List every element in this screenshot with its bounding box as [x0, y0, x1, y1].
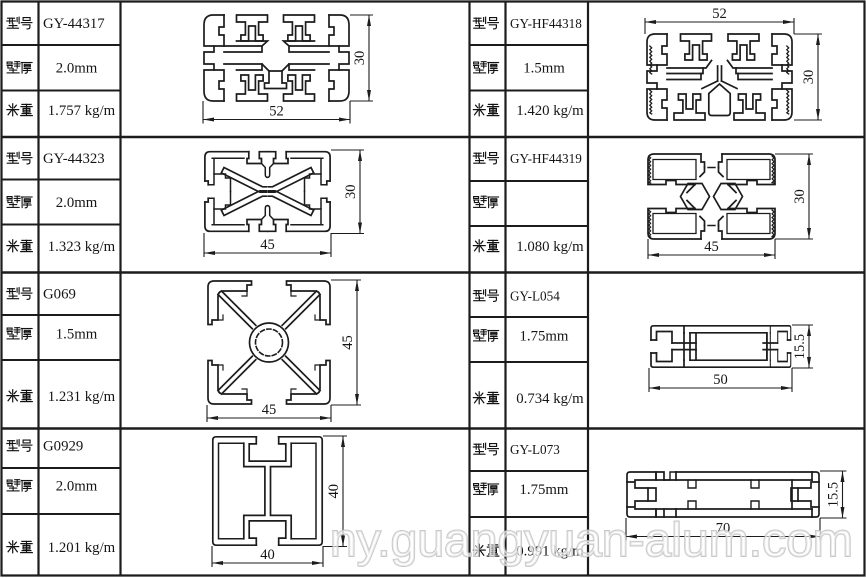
svg-text:45: 45 [704, 239, 719, 255]
svg-text:30: 30 [792, 189, 808, 204]
svg-text:1.231 kg/m: 1.231 kg/m [48, 389, 116, 405]
svg-text:45: 45 [340, 335, 356, 350]
svg-text:2.0mm: 2.0mm [56, 195, 98, 211]
svg-text:ny.guangyuan-alum.com: ny.guangyuan-alum.com [330, 514, 853, 567]
svg-text:GY-44317: GY-44317 [43, 16, 105, 32]
svg-text:G069: G069 [43, 287, 76, 303]
svg-text:50: 50 [713, 372, 728, 388]
svg-text:G0929: G0929 [43, 439, 83, 455]
svg-text:1.420 kg/m: 1.420 kg/m [516, 103, 584, 119]
svg-text:1.201 kg/m: 1.201 kg/m [48, 540, 116, 556]
svg-text:52: 52 [269, 104, 284, 120]
svg-text:40: 40 [326, 484, 342, 499]
svg-text:GY-HF44319: GY-HF44319 [510, 151, 582, 166]
svg-text:45: 45 [262, 402, 277, 418]
svg-text:1.75mm: 1.75mm [520, 329, 569, 345]
svg-text:GY-L054: GY-L054 [510, 289, 560, 304]
svg-text:30: 30 [352, 51, 368, 66]
svg-text:GY-HF44318: GY-HF44318 [510, 16, 582, 31]
svg-text:52: 52 [712, 6, 727, 22]
svg-text:1.5mm: 1.5mm [56, 327, 98, 343]
svg-text:GY-L073: GY-L073 [510, 442, 560, 457]
svg-text:45: 45 [260, 237, 275, 253]
svg-text:GY-44323: GY-44323 [43, 151, 105, 167]
svg-text:30: 30 [801, 70, 817, 85]
svg-text:15.5: 15.5 [792, 334, 808, 359]
svg-text:15.5: 15.5 [826, 482, 842, 507]
svg-text:2.0mm: 2.0mm [56, 479, 98, 495]
svg-text:1.75mm: 1.75mm [520, 482, 569, 498]
svg-text:1.757 kg/m: 1.757 kg/m [48, 103, 116, 119]
svg-text:30: 30 [343, 185, 359, 200]
svg-text:2.0mm: 2.0mm [56, 61, 98, 77]
svg-text:1.5mm: 1.5mm [523, 61, 565, 77]
svg-text:0.734 kg/m: 0.734 kg/m [516, 391, 584, 407]
svg-text:40: 40 [260, 547, 275, 563]
svg-text:1.323 kg/m: 1.323 kg/m [48, 239, 116, 255]
svg-text:1.080 kg/m: 1.080 kg/m [516, 239, 584, 255]
